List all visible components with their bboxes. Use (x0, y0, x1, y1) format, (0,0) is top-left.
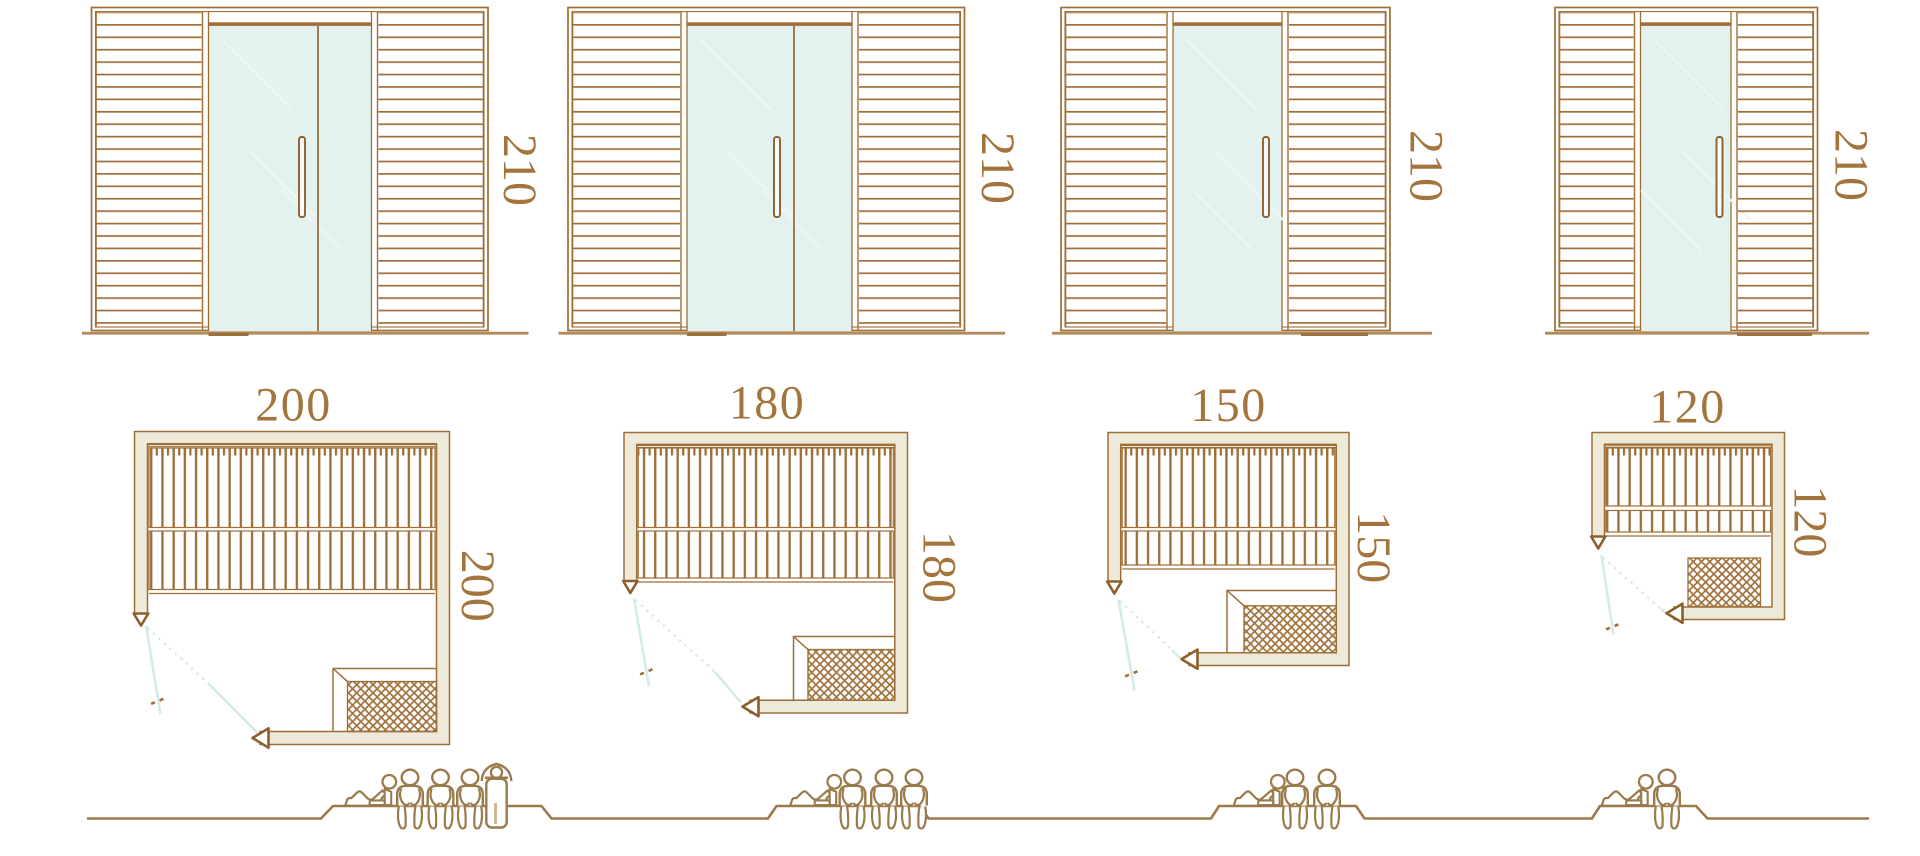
svg-text:150: 150 (1190, 379, 1267, 432)
svg-text:210: 210 (493, 134, 546, 206)
svg-text:200: 200 (451, 550, 504, 622)
svg-text:200: 200 (255, 379, 332, 432)
svg-text:120: 120 (1784, 485, 1837, 557)
svg-text:120: 120 (1649, 380, 1726, 433)
svg-text:150: 150 (1347, 511, 1400, 583)
svg-text:210: 210 (1825, 129, 1878, 201)
svg-text:210: 210 (1400, 130, 1453, 202)
svg-text:180: 180 (729, 377, 806, 430)
svg-text:180: 180 (913, 531, 966, 603)
svg-text:210: 210 (971, 132, 1024, 204)
